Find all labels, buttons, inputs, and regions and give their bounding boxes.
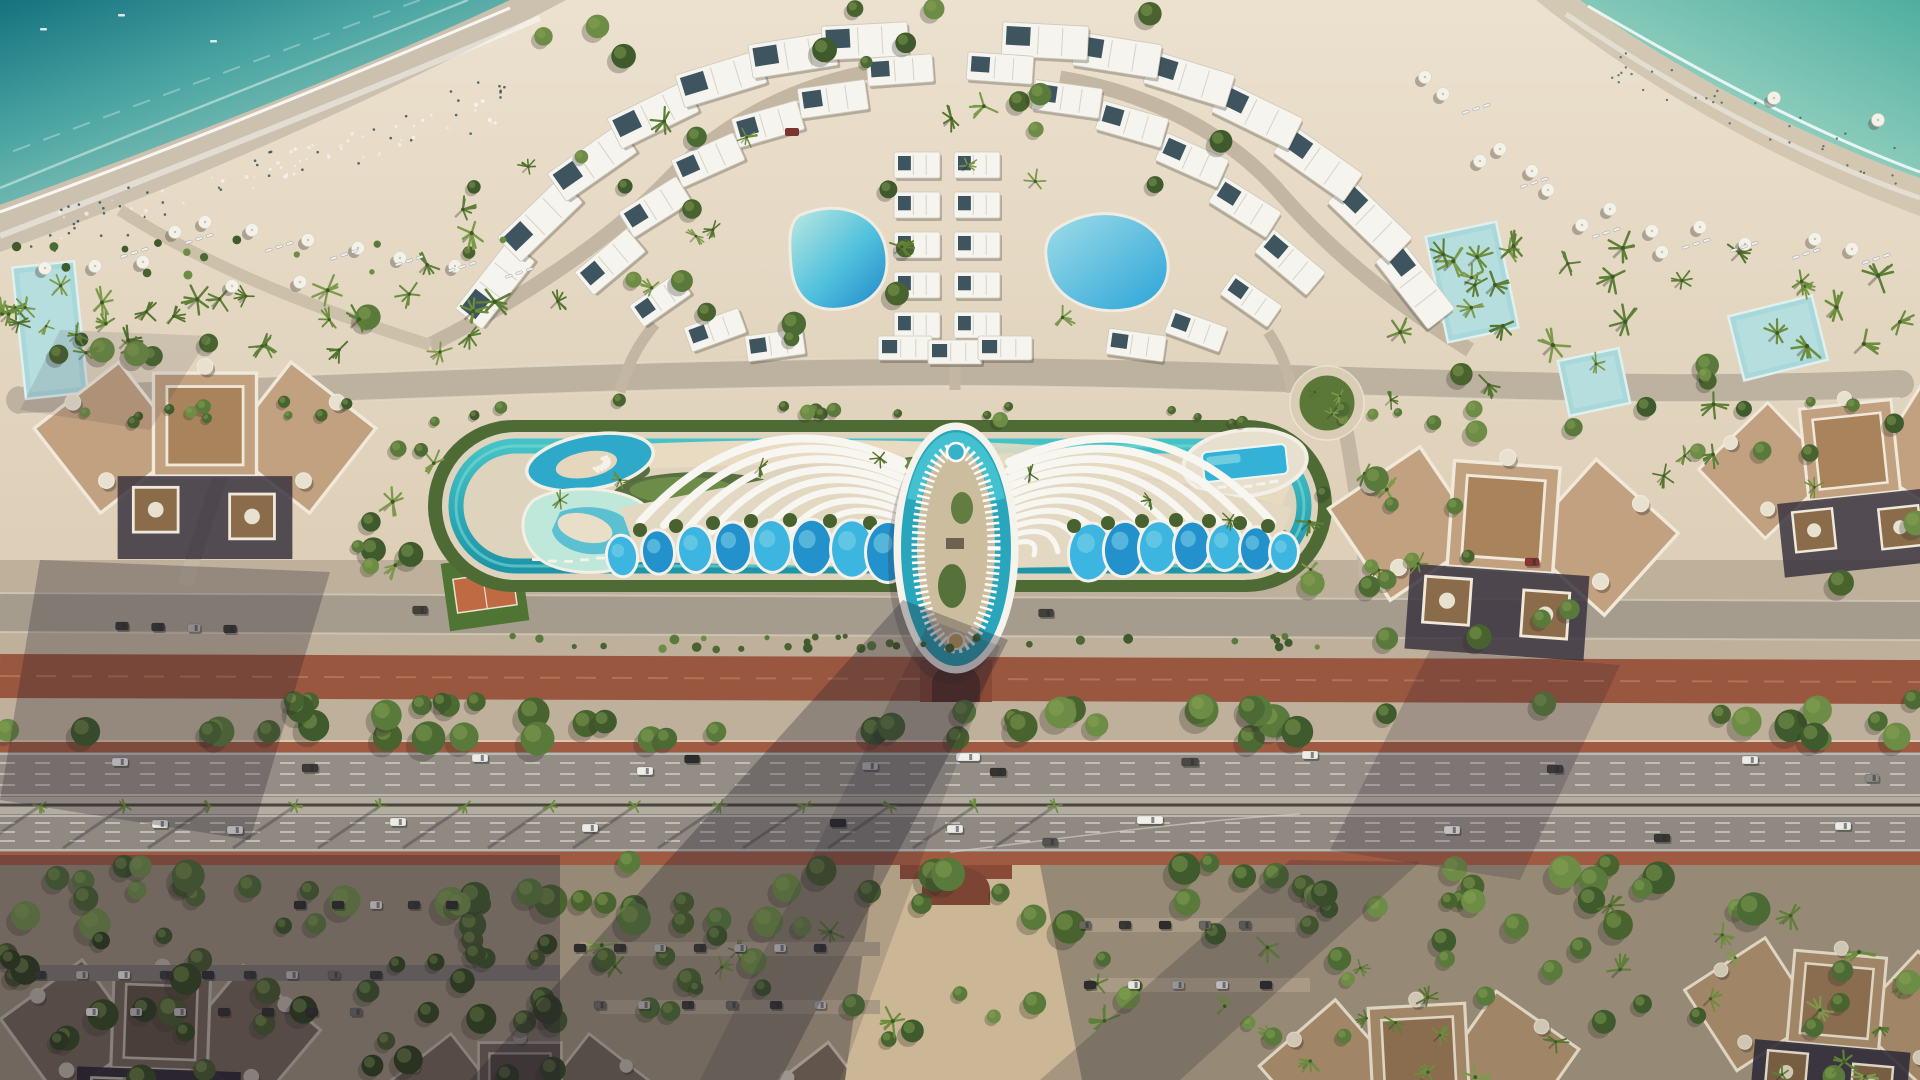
swimmer-dot bbox=[119, 205, 122, 208]
swimmer-dot bbox=[457, 99, 460, 102]
oval-pool bbox=[1268, 531, 1300, 573]
shrub bbox=[1026, 641, 1033, 648]
shrub bbox=[369, 269, 374, 274]
cabana-hedge bbox=[706, 516, 720, 530]
car bbox=[1159, 921, 1173, 931]
swimmer-dot bbox=[1642, 89, 1644, 91]
surf-fleck bbox=[253, 176, 255, 178]
swimmer-dot bbox=[1671, 69, 1673, 71]
car bbox=[413, 606, 430, 616]
shrub bbox=[535, 634, 543, 642]
swimmer-dot bbox=[78, 203, 81, 206]
surf-fleck bbox=[84, 212, 88, 216]
surf-fleck bbox=[182, 202, 184, 204]
shrub bbox=[1076, 636, 1085, 645]
surf-fleck bbox=[299, 160, 301, 162]
townhouse-block bbox=[878, 336, 934, 363]
swimmer-dot bbox=[67, 205, 70, 208]
swimmer-dot bbox=[410, 139, 413, 142]
surf-fleck bbox=[311, 144, 313, 146]
surf-fleck bbox=[217, 187, 219, 189]
shrub bbox=[804, 638, 811, 645]
swimmer-dot bbox=[1891, 174, 1893, 176]
surf-fleck bbox=[58, 211, 62, 215]
swimmer-dot bbox=[1705, 97, 1707, 99]
surf-fleck bbox=[276, 161, 280, 165]
swimmer-dot bbox=[146, 191, 149, 194]
car bbox=[947, 825, 965, 835]
swimmer-dot bbox=[1625, 52, 1627, 54]
townhouse-block bbox=[966, 52, 1036, 88]
circular-palm-garden bbox=[1290, 366, 1364, 440]
swimmer-dot bbox=[1619, 56, 1621, 58]
shrub bbox=[183, 270, 192, 279]
dome bbox=[1499, 449, 1516, 466]
swimmer-dot bbox=[1788, 141, 1790, 143]
swimmer-dot bbox=[1729, 122, 1731, 124]
car bbox=[990, 768, 1008, 778]
swimmer-dot bbox=[1769, 138, 1771, 140]
surf-fleck bbox=[306, 158, 308, 160]
cabana-hedge bbox=[1101, 516, 1115, 530]
surf-fleck bbox=[481, 99, 485, 103]
cabana-hedge bbox=[1169, 513, 1183, 527]
car bbox=[685, 755, 702, 765]
car bbox=[1039, 609, 1056, 619]
surf-fleck bbox=[379, 152, 381, 154]
cabana-hedge bbox=[1067, 519, 1081, 533]
cabana-hedge bbox=[633, 523, 647, 537]
aerial-render-stage bbox=[0, 0, 1920, 1080]
car bbox=[1835, 822, 1853, 832]
swimmer-dot bbox=[1630, 73, 1632, 75]
dome bbox=[1286, 1032, 1301, 1047]
swimmer-dot bbox=[1863, 172, 1865, 174]
shrub bbox=[49, 242, 58, 251]
surf-fleck bbox=[245, 175, 249, 179]
swimmer-dot bbox=[1846, 164, 1848, 166]
dome bbox=[99, 473, 115, 489]
swimmer-dot bbox=[77, 220, 80, 223]
car bbox=[1079, 921, 1093, 931]
swimmer-dot bbox=[164, 213, 167, 216]
surf-fleck bbox=[283, 176, 285, 178]
shrub bbox=[764, 635, 769, 640]
surf-fleck bbox=[488, 118, 492, 122]
car bbox=[1742, 756, 1760, 766]
shrub bbox=[62, 263, 71, 272]
shrub bbox=[509, 633, 515, 639]
shrub bbox=[1281, 633, 1288, 640]
swimmer-dot bbox=[499, 96, 502, 99]
shrub bbox=[572, 644, 577, 649]
shrub bbox=[712, 646, 720, 654]
townhouse-block bbox=[866, 54, 936, 90]
cabana-hedge bbox=[1233, 516, 1247, 530]
surf-fleck bbox=[361, 135, 364, 138]
swimmer-dot bbox=[1712, 101, 1714, 103]
swimmer-dot bbox=[499, 89, 502, 92]
car bbox=[1865, 774, 1881, 784]
car bbox=[472, 754, 490, 764]
aqua-court bbox=[1558, 348, 1630, 416]
surf-fleck bbox=[60, 237, 62, 239]
lounger bbox=[580, 558, 589, 561]
swimmer-dot bbox=[268, 174, 271, 177]
car bbox=[1302, 751, 1320, 761]
swimmer-dot bbox=[1799, 117, 1801, 119]
swimmer-dot bbox=[389, 137, 392, 140]
shrub bbox=[1275, 643, 1284, 652]
surf-fleck bbox=[347, 139, 350, 142]
swimmer-dot bbox=[1821, 148, 1823, 150]
surf-fleck bbox=[446, 127, 449, 130]
surf-fleck bbox=[474, 103, 478, 107]
swimmer-dot bbox=[1754, 102, 1756, 104]
swimmer-dot bbox=[127, 234, 130, 237]
lounger bbox=[564, 560, 573, 563]
car bbox=[302, 764, 320, 774]
boat bbox=[210, 40, 217, 43]
cabana-hedge bbox=[1202, 514, 1216, 528]
dome bbox=[1632, 495, 1649, 512]
townhouse-block bbox=[954, 192, 1002, 221]
swimmer-dot bbox=[455, 114, 458, 117]
surf-fleck bbox=[221, 179, 225, 183]
swimmer-dot bbox=[373, 128, 376, 131]
dome bbox=[197, 359, 213, 375]
shrub bbox=[122, 246, 129, 253]
car bbox=[390, 818, 408, 828]
swimmer-dot bbox=[73, 227, 76, 230]
surf-fleck bbox=[395, 125, 398, 128]
surf-fleck bbox=[211, 177, 213, 179]
swimmer-dot bbox=[1788, 125, 1790, 127]
shrub bbox=[1315, 644, 1320, 649]
swimmer-dot bbox=[1617, 74, 1619, 76]
swimmer-dot bbox=[1860, 170, 1862, 172]
shrub bbox=[1231, 638, 1238, 645]
car bbox=[785, 128, 799, 136]
cabana-hedge bbox=[783, 513, 797, 527]
shrub bbox=[701, 636, 707, 642]
shrub bbox=[738, 646, 744, 652]
surf-fleck bbox=[307, 146, 310, 149]
swimmer-dot bbox=[498, 85, 501, 88]
surf-fleck bbox=[430, 114, 432, 116]
shrub bbox=[658, 645, 666, 653]
swimmer-dot bbox=[1822, 145, 1824, 147]
townhouse-block bbox=[954, 272, 1002, 301]
car bbox=[1199, 921, 1213, 931]
east-lagoon-pool bbox=[1046, 214, 1168, 311]
surf-fleck bbox=[290, 150, 293, 153]
swimmer-dot bbox=[469, 132, 472, 135]
shrub bbox=[500, 236, 507, 243]
townhouse-block bbox=[894, 192, 942, 221]
west-lagoon-pool bbox=[790, 208, 887, 309]
swimmer-dot bbox=[1720, 101, 1722, 103]
swimmer-dot bbox=[1713, 95, 1715, 97]
courtyard-garden bbox=[938, 564, 966, 608]
surf-fleck bbox=[474, 109, 476, 111]
shrub bbox=[692, 642, 702, 652]
lounger bbox=[532, 558, 541, 561]
courtyard-garden bbox=[951, 492, 973, 524]
swimmer-dot bbox=[1894, 182, 1896, 184]
swimmer-dot bbox=[256, 164, 259, 167]
swimmer-dot bbox=[60, 208, 63, 211]
dome bbox=[296, 473, 312, 489]
surf-fleck bbox=[413, 125, 416, 128]
car bbox=[1525, 558, 1541, 568]
cabana-hedge bbox=[669, 519, 683, 533]
courtyard-pavilion bbox=[946, 538, 964, 549]
dome bbox=[1534, 1019, 1549, 1034]
townhouse-block bbox=[894, 152, 942, 181]
swimmer-dot bbox=[254, 159, 257, 162]
surf-fleck bbox=[421, 119, 424, 122]
swimmer-dot bbox=[301, 168, 304, 171]
swimmer-dot bbox=[103, 212, 106, 215]
townhouse-block bbox=[928, 340, 984, 367]
shrub bbox=[154, 239, 162, 247]
car bbox=[1137, 816, 1165, 826]
car bbox=[1182, 758, 1201, 768]
shrub bbox=[600, 643, 607, 650]
car bbox=[1084, 981, 1098, 991]
shrub bbox=[1123, 634, 1133, 644]
cabana-hedge bbox=[744, 514, 758, 528]
surf-fleck bbox=[144, 209, 148, 213]
cabana-hedge bbox=[1261, 519, 1275, 533]
shrub bbox=[12, 242, 21, 251]
swimmer-dot bbox=[99, 201, 102, 204]
swimmer-dot bbox=[477, 81, 480, 84]
surf-fleck bbox=[294, 147, 297, 150]
shrub bbox=[232, 235, 241, 244]
shrub bbox=[843, 634, 848, 639]
cabana-hedge bbox=[1135, 514, 1149, 528]
swimmer-dot bbox=[220, 188, 223, 191]
car bbox=[637, 767, 655, 777]
swimmer-dot bbox=[1651, 70, 1653, 72]
shrub bbox=[200, 253, 208, 261]
shrub bbox=[183, 248, 191, 256]
shrub bbox=[1274, 637, 1281, 644]
surf-fleck bbox=[362, 156, 365, 159]
surf-fleck bbox=[340, 148, 342, 150]
swimmer-dot bbox=[1620, 72, 1622, 74]
surf-fleck bbox=[280, 166, 283, 169]
swimmer-dot bbox=[161, 201, 164, 204]
surf-fleck bbox=[326, 153, 330, 157]
swimmer-dot bbox=[102, 207, 105, 210]
swimmer-dot bbox=[450, 90, 453, 93]
surf-fleck bbox=[286, 173, 289, 176]
townhouse-block bbox=[954, 232, 1002, 261]
swimmer-dot bbox=[316, 151, 319, 154]
swimmer-dot bbox=[127, 186, 130, 189]
shrub bbox=[1284, 639, 1292, 647]
swimmer-dot bbox=[49, 234, 52, 237]
surf-fleck bbox=[339, 144, 343, 148]
swimmer-dot bbox=[1618, 81, 1620, 83]
surf-fleck bbox=[292, 172, 295, 175]
shrub bbox=[670, 635, 680, 645]
boat bbox=[118, 14, 125, 17]
swimmer-dot bbox=[357, 162, 360, 165]
swimmer-dot bbox=[1716, 90, 1718, 92]
shrub bbox=[294, 251, 300, 257]
swimmer-dot bbox=[1844, 132, 1846, 134]
surf-fleck bbox=[494, 121, 497, 124]
surf-fleck bbox=[491, 122, 493, 124]
car bbox=[1119, 921, 1133, 931]
swimmer-dot bbox=[1694, 97, 1696, 99]
surf-fleck bbox=[252, 187, 254, 189]
surf-fleck bbox=[269, 168, 272, 171]
townhouse-block bbox=[978, 336, 1034, 363]
swimmer-dot bbox=[1625, 66, 1627, 68]
shrub bbox=[374, 241, 381, 248]
car bbox=[582, 824, 600, 834]
swimmer-dot bbox=[68, 232, 71, 235]
car bbox=[1654, 834, 1672, 844]
sky-pool bbox=[947, 443, 965, 461]
shrub bbox=[143, 268, 152, 277]
swimmer-dot bbox=[30, 245, 33, 248]
swimmer-dot bbox=[1893, 147, 1895, 149]
boat bbox=[40, 28, 47, 31]
swimmer-dot bbox=[503, 86, 506, 89]
surf-fleck bbox=[400, 139, 402, 141]
swimmer-dot bbox=[270, 150, 273, 153]
cabana-hedge bbox=[823, 514, 837, 528]
swimmer-dot bbox=[1836, 137, 1838, 139]
swimmer-dot bbox=[100, 234, 103, 237]
surf-fleck bbox=[63, 216, 65, 218]
surf-fleck bbox=[350, 132, 354, 136]
swimmer-dot bbox=[405, 115, 408, 118]
lounger bbox=[596, 556, 605, 559]
surf-fleck bbox=[398, 143, 402, 147]
surf-fleck bbox=[412, 136, 415, 139]
car bbox=[1128, 981, 1142, 991]
southwest-shade bbox=[0, 855, 560, 1080]
swimmer-dot bbox=[1666, 99, 1668, 101]
surf-fleck bbox=[111, 199, 113, 201]
shrub bbox=[835, 634, 841, 640]
resort-masterplan-aerial-render bbox=[0, 0, 1920, 1080]
car bbox=[1043, 838, 1060, 848]
shrub bbox=[784, 643, 792, 651]
swimmer-dot bbox=[73, 223, 76, 226]
swimmer-dot bbox=[1611, 77, 1613, 79]
surf-fleck bbox=[294, 165, 296, 167]
dome bbox=[1592, 573, 1609, 590]
surf-fleck bbox=[377, 154, 380, 157]
surf-fleck bbox=[161, 189, 164, 192]
shrub bbox=[812, 634, 819, 641]
lounger bbox=[548, 560, 557, 563]
